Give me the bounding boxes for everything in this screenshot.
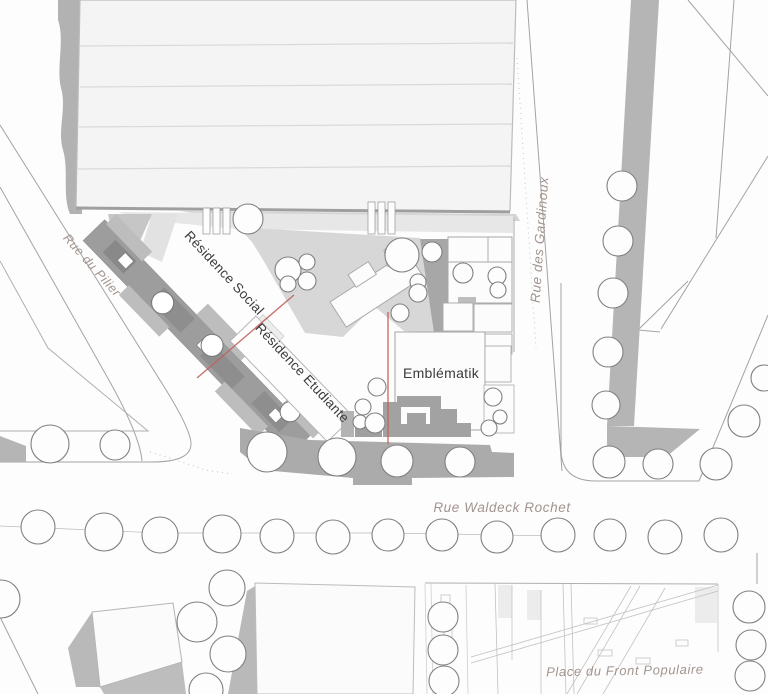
tree — [203, 515, 241, 553]
tree — [481, 521, 513, 553]
tree — [493, 410, 507, 424]
tree — [355, 399, 371, 415]
tree — [233, 204, 263, 234]
tree — [541, 518, 575, 552]
tree — [318, 438, 356, 476]
tree — [426, 519, 458, 551]
tree — [598, 278, 628, 308]
tree — [700, 448, 732, 480]
site-plan: Rue du Pilier Rue des Gardinoux Rue Wald… — [0, 0, 768, 694]
tree — [298, 272, 316, 290]
tree — [372, 519, 404, 551]
building-label-emblematik: Emblématik — [403, 365, 480, 381]
tree — [733, 591, 765, 623]
tree — [594, 519, 626, 551]
warehouse-roof — [76, 0, 516, 211]
tree — [736, 630, 766, 660]
warehouse-building — [58, 0, 520, 221]
tree — [704, 518, 738, 552]
tree — [422, 242, 442, 262]
tree — [260, 519, 294, 553]
tree — [607, 171, 637, 201]
tree — [142, 517, 178, 553]
tree — [481, 420, 497, 436]
tree — [603, 226, 633, 256]
tree — [490, 282, 506, 298]
tree — [593, 337, 623, 367]
tree — [210, 636, 246, 672]
tree — [21, 510, 55, 544]
tree — [648, 520, 682, 554]
tree — [209, 570, 245, 606]
tree — [484, 388, 502, 406]
tree — [429, 666, 459, 694]
tree — [368, 378, 386, 396]
tree — [643, 449, 673, 479]
tree — [31, 425, 69, 463]
tree — [428, 602, 458, 632]
tree — [100, 430, 130, 460]
tree — [593, 446, 625, 478]
tree — [391, 304, 409, 322]
tree — [280, 276, 296, 292]
tree — [365, 413, 385, 433]
tree — [299, 254, 315, 270]
tree — [453, 263, 473, 283]
tree — [385, 238, 419, 272]
tree — [428, 635, 458, 665]
street-label-rue-waldeck-rochet: Rue Waldeck Rochet — [433, 500, 571, 515]
tree — [592, 391, 620, 419]
tree — [247, 432, 287, 472]
tree — [409, 284, 427, 302]
tree — [177, 602, 217, 642]
tree — [728, 405, 760, 437]
tree — [316, 520, 350, 554]
site-plan-canvas: Rue du Pilier Rue des Gardinoux Rue Wald… — [0, 0, 768, 694]
tree — [445, 447, 475, 477]
tree — [381, 445, 413, 477]
tree — [85, 513, 123, 551]
street-label-place-du-front-populaire: Place du Front Populaire — [546, 662, 704, 680]
tree — [735, 661, 765, 691]
